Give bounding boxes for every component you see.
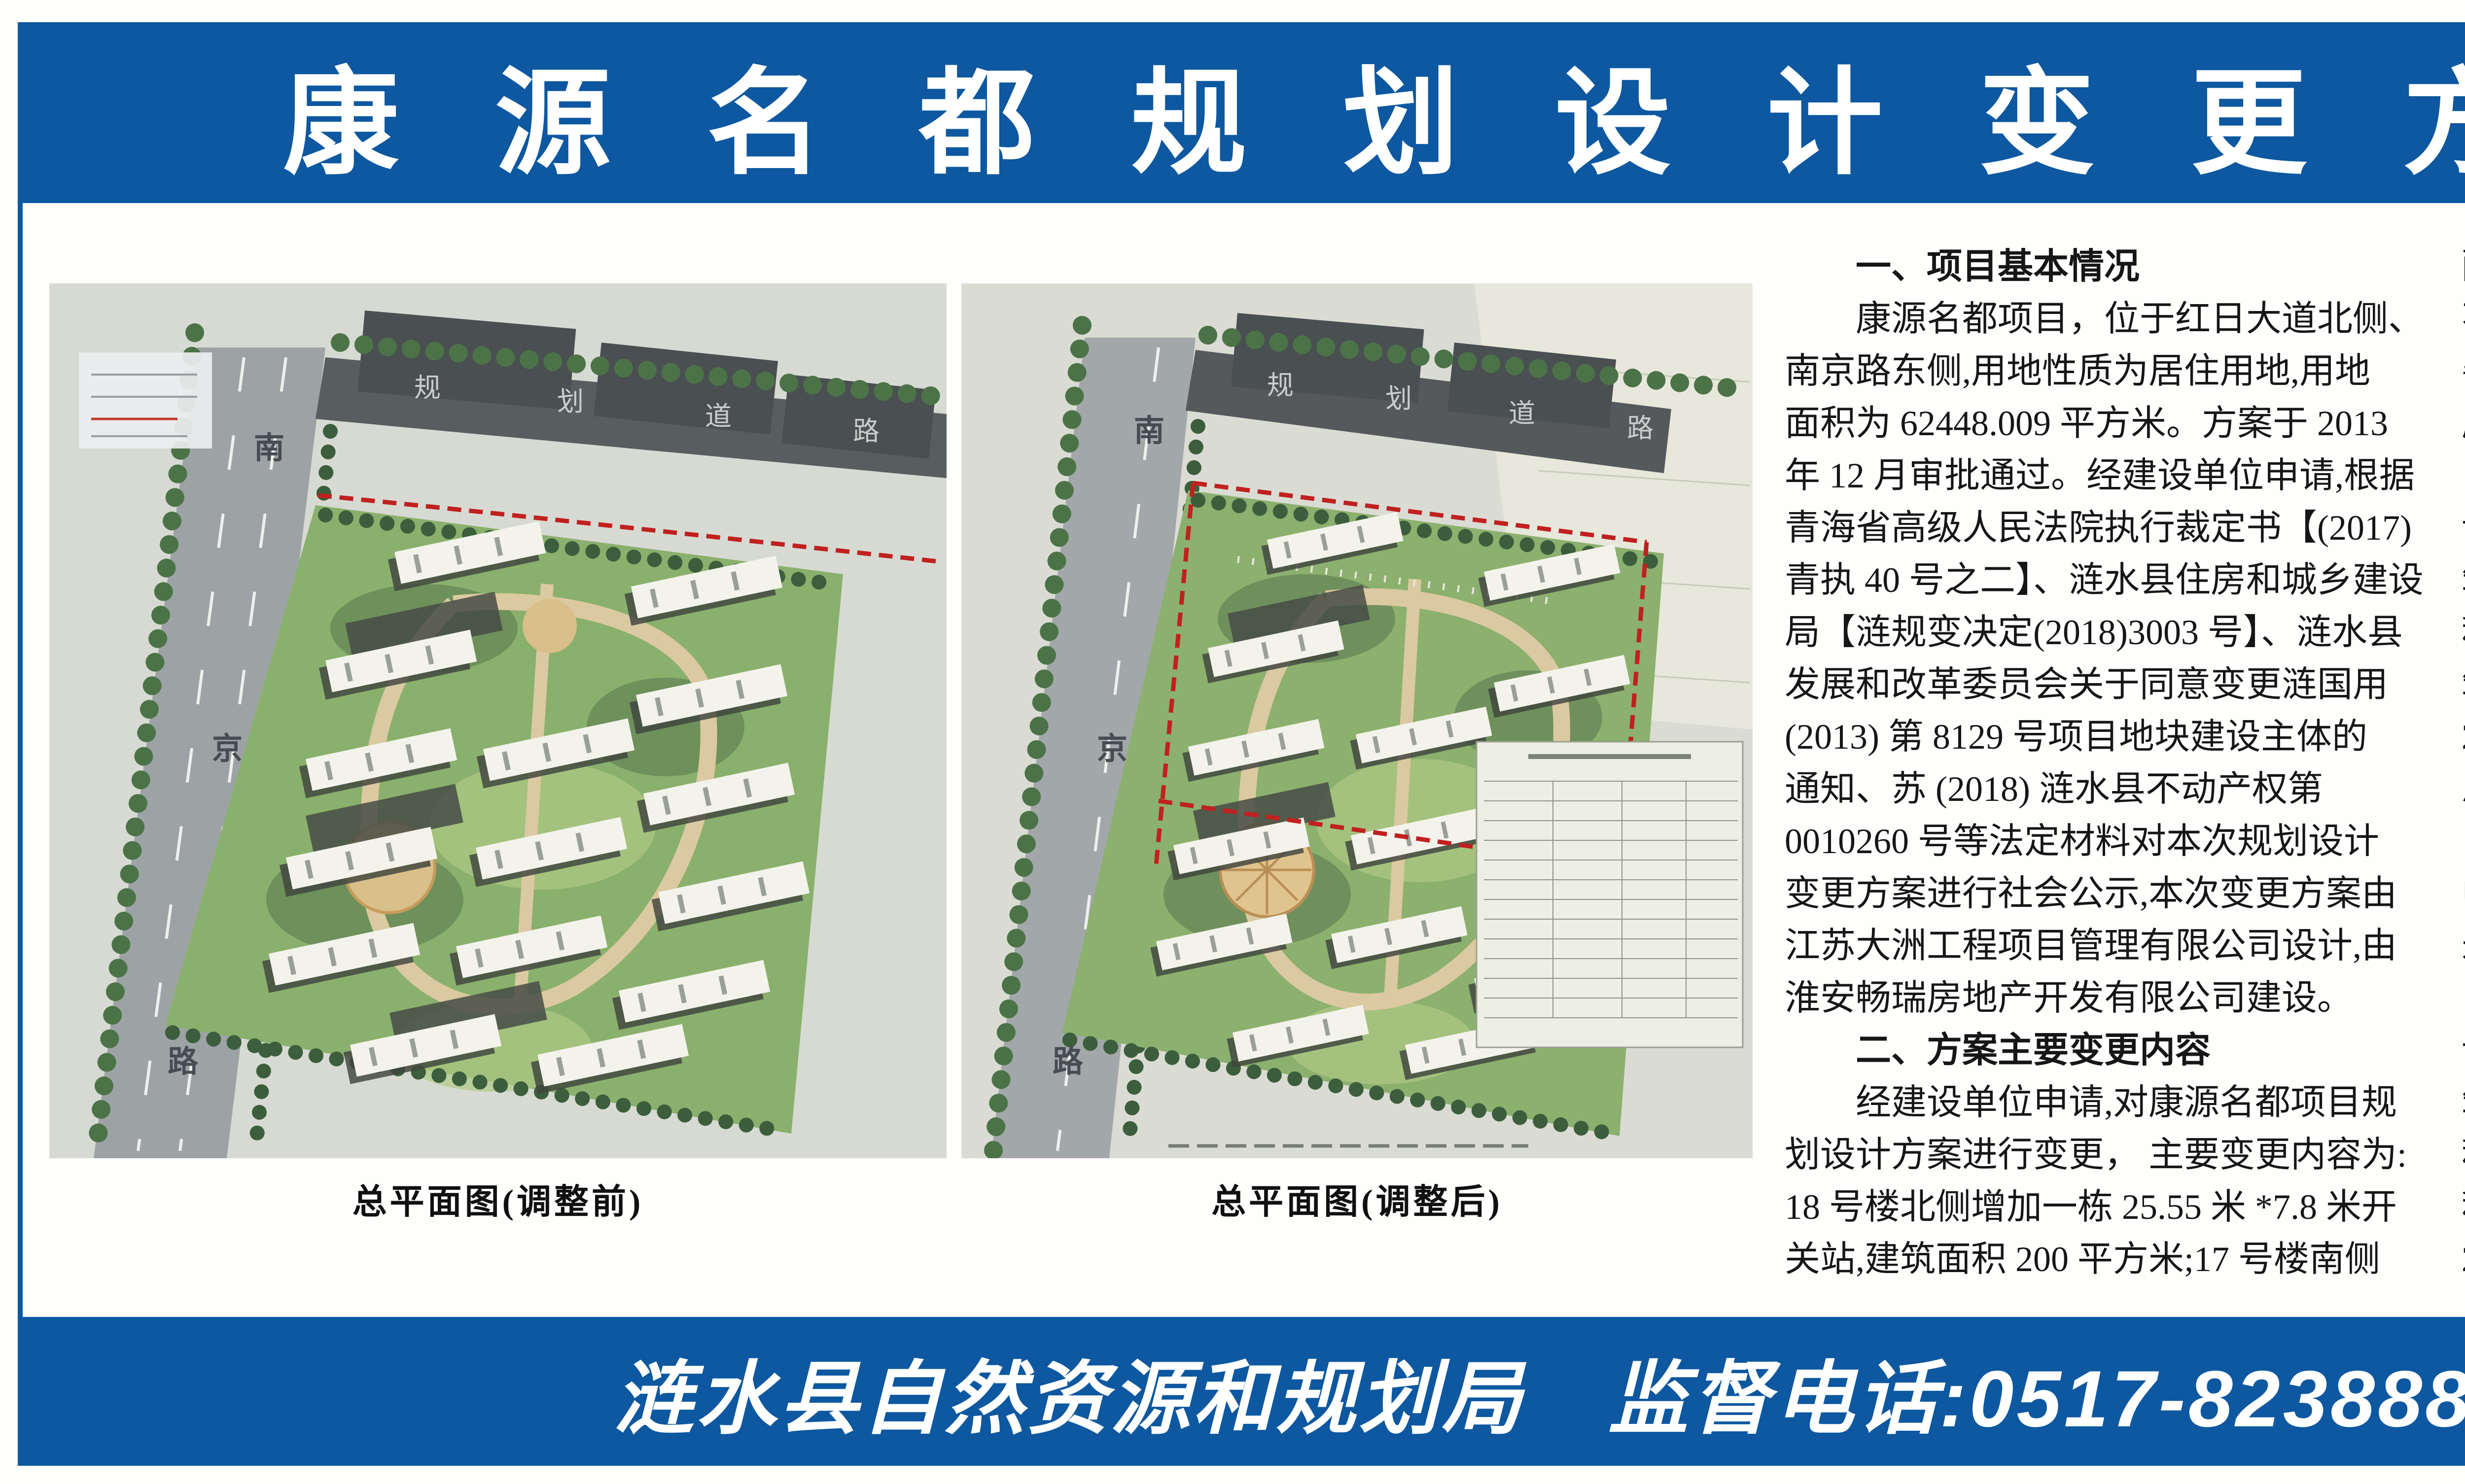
road-label-char: 京 — [1097, 732, 1127, 766]
corner-note-block — [79, 352, 212, 449]
text-line: 通知、苏 (2018) 涟水县不动产权第 — [1785, 763, 2436, 815]
text-line: 青执 40 号之二】、涟水县住房和城乡建设 — [1785, 554, 2436, 606]
text-line: 设用地总面积 62448.009 平方米,总建 — [2462, 1024, 2465, 1076]
indicator-table — [1477, 742, 1743, 1047]
text-line: 18 号楼北侧增加一栋 25.55 米 *7.8 米开 — [1785, 1181, 2436, 1233]
text-line: 积率面积 152523.81 平方米， 不计容建 — [2462, 606, 2465, 658]
road-label-char: 南 — [254, 432, 284, 465]
text-line: 筑面积 182873.12 平方米 （其中计算容 — [2462, 554, 2465, 606]
text-line: 总户数 1333 户,机动车停车位 1361 辆 — [2462, 763, 2465, 815]
text-line: 设用地总面积 62448.009 平方米,总建 — [2462, 502, 2465, 554]
text-line: 0010260 号等法定材料对本次规划设计 — [1785, 815, 2436, 867]
text-line: （其中商业 28 辆、住宅 1333 辆）。项目 — [2462, 815, 2465, 867]
text-column-2: 配电房由南北向调整为东西向,尺寸保持不变; 在各项指标数据不变的情况下,完善总平… — [2462, 241, 2465, 1285]
road-label-char: 路 — [168, 1045, 199, 1079]
header-banner: 康源名都规划设计变更方案批前公示 — [18, 22, 2465, 203]
text-line: 米,社区党群服务用房 374.48 平方米。 — [2462, 920, 2465, 972]
public-notice-page: 康源名都规划设计变更方案批前公示 — [0, 0, 2465, 1484]
text-line: 不变; 在各项指标数据不变的情况下,完 — [2462, 293, 2465, 345]
text-line: 变更后主要经济技术指标:项目建 — [2462, 972, 2465, 1024]
text-line: 中包含物业管理服务用房 740.2 平方 — [2462, 867, 2465, 920]
text-line: 关站,建筑面积 200 平方米;17 号楼南侧 — [1785, 1233, 2436, 1285]
road-label-char: 南 — [1134, 414, 1164, 448]
text-line: 善总平面各幢建筑正负零标高及地下车 — [2462, 345, 2465, 397]
text-line: 库轮廓线;地面景观进行局部调整。 — [2462, 397, 2465, 449]
section-heading: 一、项目基本情况 — [1785, 241, 2436, 293]
frame-left-border — [18, 22, 23, 1466]
text-line: 2.45,建筑密度 18.71%,绿地率 30.2%, — [2462, 1233, 2465, 1285]
text-line: 发展和改革委员会关于同意变更涟国用 — [1785, 658, 2436, 711]
text-line: 积率面积 152716.75 平方米， 不计算容 — [2462, 1129, 2465, 1181]
text-line: 淮安畅瑞房地产开发有限公司建设。 — [1785, 972, 2436, 1024]
top-road-label-char: 划 — [1385, 384, 1412, 414]
plaza-small — [523, 599, 577, 653]
top-road-label-char: 路 — [1627, 414, 1654, 443]
top-road-label-char: 规 — [414, 373, 441, 403]
text-column-1: 一、项目基本情况 康源名都项目，位于红日大道北侧、南京路东侧,用地性质为居住用地… — [1785, 241, 2436, 1285]
site-plan-after-image: 南 京 路 规 划 道 路 — [961, 283, 1753, 1158]
text-line: 面积为 62448.009 平方米。方案于 2013 — [1785, 397, 2436, 449]
text-line: 局【涟规变决定(2018)3003 号】、涟水县 — [1785, 606, 2436, 658]
text-line: 变更前主要经济技术指标:项目建 — [2462, 449, 2465, 502]
text-line: 筑面积 30349.31 平方米）， 容积率 — [2462, 658, 2465, 711]
caption-after: 总平面图(调整后) — [961, 1174, 1753, 1218]
text-line: 年 12 月审批通过。经建设单位申请,根据 — [1785, 449, 2436, 502]
top-road-label-char: 道 — [1509, 399, 1535, 428]
footer-banner: 涟水县自然资源和规划局 监督电话:0517-82388806、0517-8238… — [18, 1317, 2465, 1466]
caption-before: 总平面图(调整前) — [49, 1174, 947, 1218]
text-line: 2.44,建筑密度 18.38%,绿地率 31.2%, — [2462, 711, 2465, 763]
text-line: (2013) 第 8129 号项目地块建设主体的 — [1785, 711, 2436, 763]
text-line: 康源名都项目，位于红日大道北侧、 — [1785, 293, 2436, 345]
text-line: 积率面积 30543.3 平方米）， 容积率 — [2462, 1181, 2465, 1233]
text-line: 配电房由南北向调整为东西向,尺寸保持 — [2462, 241, 2465, 293]
top-road-label-char: 划 — [557, 387, 584, 416]
road-label-char: 路 — [1053, 1045, 1084, 1079]
site-plan-before-image: 南 京 路 规 划 道 路 — [49, 283, 947, 1158]
section-heading: 二、方案主要变更内容 — [1785, 1024, 2436, 1076]
text-line: 南京路东侧,用地性质为居住用地,用地 — [1785, 345, 2436, 397]
text-line: 划设计方案进行变更， 主要变更内容为: — [1785, 1129, 2436, 1181]
page-title: 康源名都规划设计变更方案批前公示 — [187, 29, 2465, 197]
agency-name: 涟水县自然资源和规划局 — [613, 1334, 1524, 1449]
top-road-label-char: 道 — [705, 402, 732, 431]
top-road-label-char: 路 — [853, 416, 880, 446]
text-line: 经建设单位申请,对康源名都项目规 — [1785, 1076, 2436, 1129]
text-line: 江苏大洲工程项目管理有限公司设计,由 — [1785, 920, 2436, 972]
top-road-label-char: 规 — [1267, 371, 1294, 400]
text-line: 筑面积 183260.05 平方米(其中计算容 — [2462, 1076, 2465, 1129]
road-label-char: 京 — [212, 732, 243, 766]
text-line: 变更方案进行社会公示,本次变更方案由 — [1785, 867, 2436, 920]
text-line: 青海省高级人民法院执行裁定书【(2017) — [1785, 502, 2436, 554]
supervision-phone: 监督电话:0517-82388806、0517-82380262 — [1608, 1334, 2465, 1449]
